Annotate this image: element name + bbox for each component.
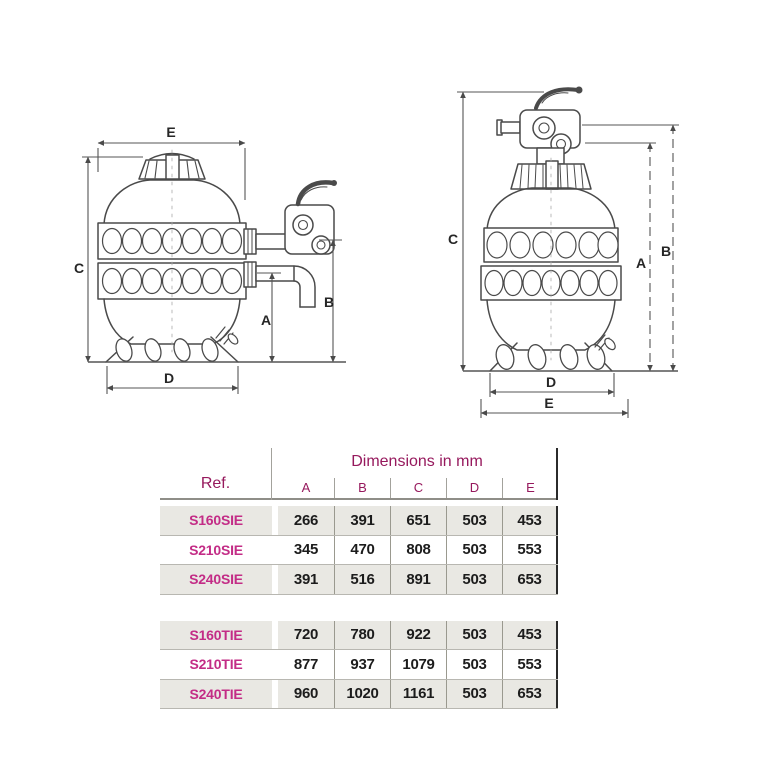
side-mount-filter-drawing: E C A B D (74, 124, 346, 394)
dim-label-a-right: A (636, 255, 646, 271)
value-cell: 808 (390, 536, 446, 565)
value-cell: 503 (446, 536, 502, 565)
table-header: Ref. Dimensions in mm A B C D E (160, 448, 558, 500)
table-row: S240TIE 960 1020 1161 503 653 (160, 680, 558, 710)
ref-cell: S210TIE (160, 650, 272, 679)
catalog-page: E C A B D (0, 0, 772, 772)
value-cell: 891 (390, 565, 446, 594)
value-cell: 503 (446, 650, 502, 679)
value-cell: 653 (502, 680, 558, 709)
value-cell: 877 (278, 650, 334, 679)
column-header-e: E (502, 478, 558, 498)
dimensions-header: Dimensions in mm (278, 448, 556, 475)
value-cell: 345 (278, 536, 334, 565)
value-cell: 653 (502, 565, 558, 594)
table-row: S240SIE 391 516 891 503 653 (160, 565, 558, 595)
dim-label-d-right: D (546, 374, 556, 390)
column-letters-row: A B C D E (278, 475, 556, 500)
table-block-sie: S160SIE 266 391 651 503 453 S210SIE 345 … (160, 506, 558, 595)
value-cell: 391 (278, 565, 334, 594)
value-cell: 266 (278, 506, 334, 535)
value-cell: 391 (334, 506, 390, 535)
column-header-a: A (278, 478, 334, 498)
side-mount-valve (244, 180, 337, 307)
dim-label-e-right: E (544, 395, 553, 411)
column-header-b: B (334, 478, 390, 498)
dim-label-b-left: B (324, 294, 334, 310)
table-row: S160TIE 720 780 922 503 453 (160, 621, 558, 651)
dimensions-table: Ref. Dimensions in mm A B C D E S160SIE … (160, 448, 558, 709)
value-cell: 720 (278, 621, 334, 650)
column-header-d: D (446, 478, 502, 498)
dimensions-header-area: Dimensions in mm A B C D E (278, 448, 558, 500)
dim-label-c-left: C (74, 260, 84, 276)
ref-cell: S210SIE (160, 536, 272, 565)
top-mount-filter-drawing: C A B D E (448, 87, 679, 419)
table-row: S160SIE 266 391 651 503 453 (160, 506, 558, 536)
value-cell: 503 (446, 621, 502, 650)
value-cell: 516 (334, 565, 390, 594)
ref-column-header: Ref. (160, 448, 272, 500)
value-cell: 922 (390, 621, 446, 650)
ref-cell: S160SIE (160, 506, 272, 535)
table-row: S210SIE 345 470 808 503 553 (160, 536, 558, 566)
value-cell: 503 (446, 565, 502, 594)
table-row: S210TIE 877 937 1079 503 553 (160, 650, 558, 680)
value-cell: 453 (502, 506, 558, 535)
side-mount-tank (98, 150, 246, 363)
value-cell: 470 (334, 536, 390, 565)
table-block-tie: S160TIE 720 780 922 503 453 S210TIE 877 … (160, 621, 558, 710)
value-cell: 553 (502, 650, 558, 679)
value-cell: 937 (334, 650, 390, 679)
value-cell: 1161 (390, 680, 446, 709)
value-cell: 1079 (390, 650, 446, 679)
dim-label-b-right: B (661, 243, 671, 259)
valve-handle (298, 182, 333, 204)
value-cell: 960 (278, 680, 334, 709)
value-cell: 1020 (334, 680, 390, 709)
dim-label-c-right: C (448, 231, 458, 247)
ref-cell: S160TIE (160, 621, 272, 650)
ref-cell: S240SIE (160, 565, 272, 594)
drain-fitting (216, 327, 240, 346)
top-mount-valve (497, 87, 591, 190)
value-cell: 453 (502, 621, 558, 650)
top-mount-tank (481, 158, 621, 371)
dim-label-a-left: A (261, 312, 271, 328)
column-header-c: C (390, 478, 446, 498)
value-cell: 503 (446, 506, 502, 535)
ref-cell: S240TIE (160, 680, 272, 709)
value-cell: 780 (334, 621, 390, 650)
dim-label-e-left: E (166, 124, 175, 140)
dim-label-d-left: D (164, 370, 174, 386)
value-cell: 553 (502, 536, 558, 565)
value-cell: 503 (446, 680, 502, 709)
value-cell: 651 (390, 506, 446, 535)
filter-diagrams: E C A B D (0, 0, 772, 440)
